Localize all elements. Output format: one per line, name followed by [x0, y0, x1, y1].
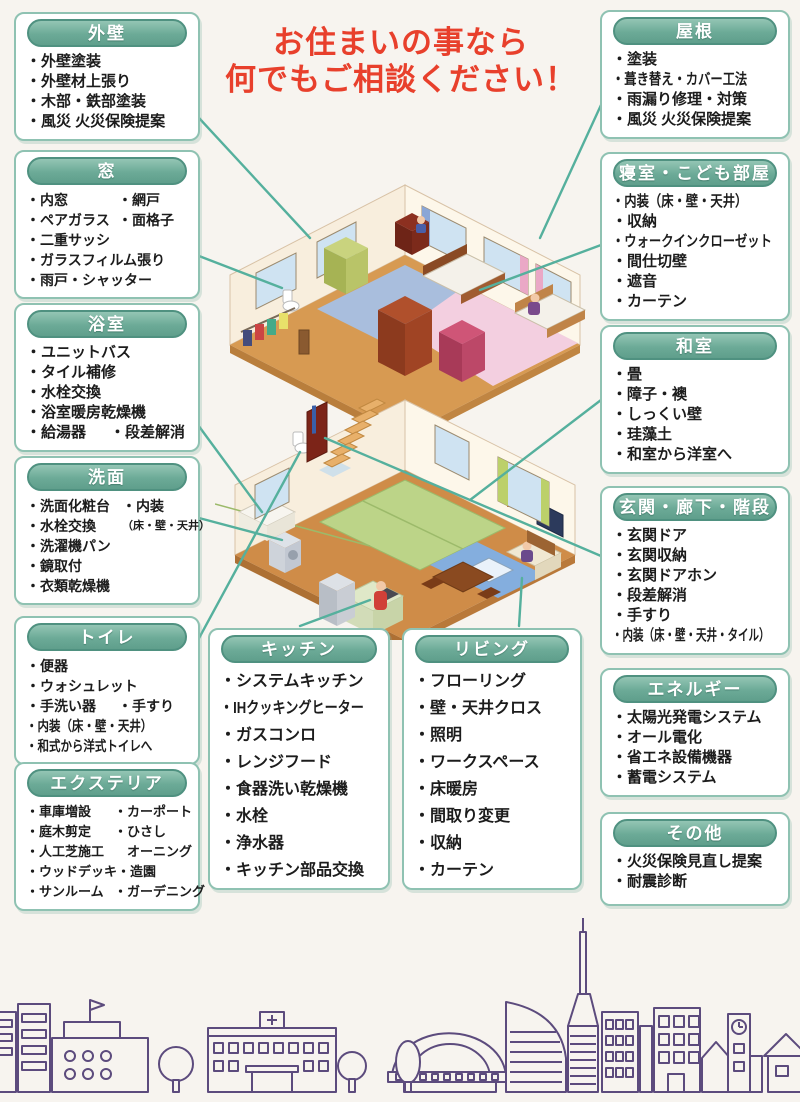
- callout-title: その他: [613, 819, 777, 847]
- item-text: ・給湯器: [26, 423, 110, 443]
- item-text: ・キッチン部品交換: [220, 857, 364, 884]
- item-line: ・ペアガラス・面格子: [26, 210, 188, 230]
- item-text: ・二重サッシ: [26, 230, 110, 250]
- item-text: ・ワークスペース: [414, 749, 540, 776]
- item-text: （床・壁・天井）: [122, 519, 210, 533]
- item-line: ・収納: [414, 830, 570, 857]
- item-line: ・風災 火災保険提案: [612, 110, 778, 130]
- item-line: ・浴室暖房乾燥機: [26, 403, 188, 423]
- item-text: ・雨漏り修理・対策: [612, 90, 747, 110]
- callout-items: ・火災保険見直し提案・耐震診断: [611, 851, 779, 892]
- item-text: ・火災保険見直し提案: [612, 852, 762, 872]
- item-text: ・ガーデニング: [114, 882, 205, 902]
- item-text: ・ユニットバス: [26, 343, 131, 363]
- item-line: ・レンジフード: [220, 749, 378, 776]
- item-text: ・内窓: [26, 190, 118, 210]
- callout-roof: 屋根 ・塗装・葺き替え・カバー工法・雨漏り修理・対策・風災 火災保険提案: [600, 10, 790, 139]
- item-line: ・雨漏り修理・対策: [612, 90, 778, 110]
- item-text: ・葺き替え・カバー工法: [612, 70, 747, 90]
- callout-title: エネルギー: [613, 675, 777, 703]
- item-line: ・葺き替え・カバー工法: [612, 70, 778, 90]
- item-text: ・障子・襖: [612, 385, 687, 405]
- item-text: ・鏡取付: [26, 556, 82, 576]
- item-text: ・網戸: [118, 190, 160, 210]
- callout-title: 屋根: [613, 17, 777, 45]
- item-text: ・内装（床・壁・天井・タイル）: [612, 626, 770, 646]
- item-text: ・太陽光発電システム: [612, 708, 762, 728]
- item-text: ・浄水器: [220, 830, 284, 857]
- item-text: ・車庫増設: [26, 802, 114, 822]
- item-text: ・内装（床・壁・天井）: [612, 192, 747, 212]
- item-line: ・ウォークインクローゼット: [612, 232, 778, 252]
- item-text: ・手洗い器: [26, 696, 118, 716]
- item-text: ・面格子: [118, 210, 174, 230]
- callout-items: ・太陽光発電システム・オール電化・省エネ設備機器・蓄電システム: [611, 707, 779, 788]
- callout-title: 浴室: [27, 310, 187, 338]
- item-text: ・間取り変更: [414, 803, 510, 830]
- callout-items: ・システムキッチン・IHクッキングヒーター・ガスコンロ・レンジフード・食器洗い乾…: [219, 667, 379, 884]
- callout-items: ・内窓・網戸・ペアガラス・面格子・二重サッシ・ガラスフィルム張り・雨戸・シャッタ…: [25, 189, 189, 290]
- item-text: ・玄関ドアホン: [612, 566, 717, 586]
- item-text: ・ペアガラス: [26, 210, 118, 230]
- item-text: ・洗濯機パン: [26, 536, 111, 556]
- item-text: ・オール電化: [612, 728, 702, 748]
- item-line: ・内装（床・壁・天井）: [26, 716, 188, 736]
- callout-entrance: 玄関・廊下・階段 ・玄関ドア・玄関収納・玄関ドアホン・段差解消・手すり・内装（床…: [600, 486, 790, 655]
- item-line: ・車庫増設・カーポート: [26, 802, 188, 822]
- item-line: ・風災 火災保険提案: [26, 112, 188, 132]
- item-line: ・段差解消: [612, 586, 778, 606]
- item-line: ・システムキッチン: [220, 668, 378, 695]
- item-line: ・床暖房: [414, 776, 570, 803]
- item-text: ・ガラスフィルム張り: [26, 250, 165, 270]
- item-text: ・収納: [414, 830, 462, 857]
- item-line: ・雨戸・シャッター: [26, 270, 188, 290]
- item-text: オーニング: [114, 842, 192, 862]
- callout-title: リビング: [415, 635, 569, 663]
- item-line: ・間取り変更: [414, 803, 570, 830]
- page-title-line2: 何でもご相談ください！: [205, 61, 597, 98]
- item-line: ・外壁塗装: [26, 52, 188, 72]
- callout-title: 窓: [27, 157, 187, 185]
- item-line: ・玄関ドア: [612, 526, 778, 546]
- item-line: ・太陽光発電システム: [612, 708, 778, 728]
- item-text: ・内装（床・壁・天井）: [26, 716, 152, 736]
- item-text: ・和室から洋室へ: [612, 445, 732, 465]
- item-line: ・蓄電システム: [612, 768, 778, 788]
- item-line: ・洗濯機パン: [26, 536, 188, 556]
- callout-items: ・外壁塗装・外壁材上張り・木部・鉄部塗装・風災 火災保険提案: [25, 51, 189, 132]
- item-text: ・IHクッキングヒーター: [220, 695, 364, 722]
- item-line: ・給湯器・段差解消: [26, 423, 188, 443]
- callout-title: トイレ: [27, 623, 187, 651]
- item-line: ・障子・襖: [612, 385, 778, 405]
- item-text: ・人工芝施工: [26, 842, 114, 862]
- item-line: ・手すり: [612, 606, 778, 626]
- item-line: ・省エネ設備機器: [612, 748, 778, 768]
- callout-energy: エネルギー ・太陽光発電システム・オール電化・省エネ設備機器・蓄電システム: [600, 668, 790, 797]
- item-line: ・浄水器: [220, 830, 378, 857]
- item-line: ・水栓: [220, 803, 378, 830]
- item-line: ・ワークスペース: [414, 749, 570, 776]
- item-text: ・レンジフード: [220, 749, 332, 776]
- item-line: ・フローリング: [414, 668, 570, 695]
- item-line: ・耐震診断: [612, 872, 778, 892]
- item-text: ・間仕切壁: [612, 252, 687, 272]
- item-line: ・内装（床・壁・天井）: [612, 192, 778, 212]
- item-text: ・便器: [26, 656, 68, 676]
- item-line: ・塗装: [612, 50, 778, 70]
- item-line: ・庭木剪定・ひさし: [26, 822, 188, 842]
- item-line: ・しっくい壁: [612, 405, 778, 425]
- item-text: ・タイル補修: [26, 363, 116, 383]
- callout-exterior: エクステリア ・車庫増設・カーポート・庭木剪定・ひさし・人工芝施工 オーニング・…: [14, 762, 200, 911]
- item-text: ・玄関ドア: [612, 526, 687, 546]
- item-text: ・ウォシュレット: [26, 676, 138, 696]
- item-line: ・火災保険見直し提案: [612, 852, 778, 872]
- item-line: ・水栓交換: [26, 383, 188, 403]
- item-line: ・畳: [612, 365, 778, 385]
- item-text: ・造園: [117, 862, 156, 882]
- item-line: ・ウッドデッキ・造園: [26, 862, 188, 882]
- item-line: ・木部・鉄部塗装: [26, 92, 188, 112]
- item-text: ・雨戸・シャッター: [26, 270, 152, 290]
- callout-bathroom: 浴室 ・ユニットバス・タイル補修・水栓交換・浴室暖房乾燥機・給湯器・段差解消: [14, 303, 200, 452]
- item-line: ・内窓・網戸: [26, 190, 188, 210]
- item-text: ・畳: [612, 365, 642, 385]
- callout-items: ・車庫増設・カーポート・庭木剪定・ひさし・人工芝施工 オーニング・ウッドデッキ・…: [25, 801, 189, 902]
- item-line: ・ユニットバス: [26, 343, 188, 363]
- callout-title: 和室: [613, 332, 777, 360]
- item-text: ・水栓: [220, 803, 268, 830]
- item-line: ・水栓交換（床・壁・天井）: [26, 516, 188, 536]
- item-line: ・サンルーム・ガーデニング: [26, 882, 188, 902]
- callout-items: ・畳・障子・襖・しっくい壁・珪藻土・和室から洋室へ: [611, 364, 779, 465]
- callout-other: その他 ・火災保険見直し提案・耐震診断: [600, 812, 790, 906]
- house-illustration: [215, 180, 600, 640]
- item-text: ・内装: [122, 496, 164, 516]
- callout-title: エクステリア: [27, 769, 187, 797]
- callout-items: ・洗面化粧台・内装・水栓交換（床・壁・天井）・洗濯機パン・鏡取付・衣類乾燥機: [25, 495, 189, 596]
- item-text: ・ひさし: [114, 822, 166, 842]
- item-line: ・玄関収納: [612, 546, 778, 566]
- callout-washroom: 洗面 ・洗面化粧台・内装・水栓交換（床・壁・天井）・洗濯機パン・鏡取付・衣類乾燥…: [14, 456, 200, 605]
- item-text: ・水栓交換: [26, 383, 101, 403]
- item-line: ・便器: [26, 656, 188, 676]
- item-line: ・照明: [414, 722, 570, 749]
- callout-title: キッチン: [221, 635, 377, 663]
- callout-items: ・フローリング・壁・天井クロス・照明・ワークスペース・床暖房・間取り変更・収納・…: [413, 667, 571, 884]
- item-line: ・収納: [612, 212, 778, 232]
- page-title: お住まいの事なら 何でもご相談ください！: [205, 24, 597, 98]
- item-text: ・段差解消: [110, 423, 185, 443]
- item-text: ・サンルーム: [26, 882, 114, 902]
- item-text: ・床暖房: [414, 776, 478, 803]
- item-line: ・キッチン部品交換: [220, 857, 378, 884]
- item-text: ・洗面化粧台: [26, 496, 122, 516]
- item-line: ・ガスコンロ: [220, 722, 378, 749]
- item-text: ・収納: [612, 212, 657, 232]
- item-text: ・フローリング: [414, 668, 526, 695]
- item-text: ・浴室暖房乾燥機: [26, 403, 146, 423]
- item-text: ・カーテン: [414, 857, 494, 884]
- item-text: ・塗装: [612, 50, 657, 70]
- item-text: ・和式から洋式トイレへ: [26, 736, 152, 756]
- callout-items: ・ユニットバス・タイル補修・水栓交換・浴室暖房乾燥機・給湯器・段差解消: [25, 342, 189, 443]
- callout-title: 洗面: [27, 463, 187, 491]
- callout-japanese-room: 和室 ・畳・障子・襖・しっくい壁・珪藻土・和室から洋室へ: [600, 325, 790, 474]
- item-text: ・珪藻土: [612, 425, 672, 445]
- page-title-line1: お住まいの事なら: [205, 24, 597, 61]
- item-text: ・蓄電システム: [612, 768, 717, 788]
- item-text: ・ウォークインクローゼット: [612, 232, 772, 252]
- item-text: ・カーポート: [114, 802, 192, 822]
- callout-items: ・便器・ウォシュレット・手洗い器・手すり・内装（床・壁・天井）・和式から洋式トイ…: [25, 655, 189, 756]
- item-line: ・ウォシュレット: [26, 676, 188, 696]
- item-text: ・カーテン: [612, 292, 687, 312]
- callout-living: リビング ・フローリング・壁・天井クロス・照明・ワークスペース・床暖房・間取り変…: [402, 628, 582, 890]
- item-text: ・食器洗い乾燥機: [220, 776, 348, 803]
- first-floor: [215, 399, 575, 640]
- item-line: ・外壁材上張り: [26, 72, 188, 92]
- city-skyline: [0, 916, 800, 1102]
- item-text: ・遮音: [612, 272, 657, 292]
- item-line: ・壁・天井クロス: [414, 695, 570, 722]
- item-line: ・二重サッシ: [26, 230, 188, 250]
- item-text: ・しっくい壁: [612, 405, 702, 425]
- item-line: ・カーテン: [612, 292, 778, 312]
- callout-items: ・玄関ドア・玄関収納・玄関ドアホン・段差解消・手すり・内装（床・壁・天井・タイル…: [611, 525, 779, 646]
- item-line: ・和室から洋室へ: [612, 445, 778, 465]
- item-line: ・IHクッキングヒーター: [220, 695, 378, 722]
- item-text: ・水栓交換: [26, 516, 122, 536]
- callout-toilet: トイレ ・便器・ウォシュレット・手洗い器・手すり・内装（床・壁・天井）・和式から…: [14, 616, 200, 765]
- callout-bedroom: 寝室・こども部屋 ・内装（床・壁・天井）・収納・ウォークインクローゼット・間仕切…: [600, 152, 790, 321]
- item-line: ・珪藻土: [612, 425, 778, 445]
- item-text: ・玄関収納: [612, 546, 687, 566]
- item-text: ・庭木剪定: [26, 822, 114, 842]
- item-text: ・木部・鉄部塗装: [26, 92, 146, 112]
- item-line: ・オール電化: [612, 728, 778, 748]
- item-text: ・耐震診断: [612, 872, 687, 892]
- callout-items: ・内装（床・壁・天井）・収納・ウォークインクローゼット・間仕切壁・遮音・カーテン: [611, 191, 779, 312]
- callout-title: 寝室・こども部屋: [613, 159, 777, 187]
- item-line: ・洗面化粧台・内装: [26, 496, 188, 516]
- item-text: ・ガスコンロ: [220, 722, 316, 749]
- item-line: ・和式から洋式トイレへ: [26, 736, 188, 756]
- item-line: ・玄関ドアホン: [612, 566, 778, 586]
- callout-title: 外壁: [27, 19, 187, 47]
- item-text: ・段差解消: [612, 586, 687, 606]
- item-text: ・システムキッチン: [220, 668, 364, 695]
- item-line: ・食器洗い乾燥機: [220, 776, 378, 803]
- callout-kitchen: キッチン ・システムキッチン・IHクッキングヒーター・ガスコンロ・レンジフード・…: [208, 628, 390, 890]
- item-text: ・衣類乾燥機: [26, 576, 110, 596]
- item-line: ・タイル補修: [26, 363, 188, 383]
- item-line: ・人工芝施工 オーニング: [26, 842, 188, 862]
- item-text: ・風災 火災保険提案: [26, 112, 165, 132]
- item-line: ・手洗い器・手すり: [26, 696, 188, 716]
- item-line: ・衣類乾燥機: [26, 576, 188, 596]
- item-text: ・省エネ設備機器: [612, 748, 732, 768]
- callout-items: ・塗装・葺き替え・カバー工法・雨漏り修理・対策・風災 火災保険提案: [611, 49, 779, 130]
- item-text: ・壁・天井クロス: [414, 695, 542, 722]
- item-text: ・手すり: [612, 606, 672, 626]
- item-text: ・手すり: [118, 696, 174, 716]
- callout-title: 玄関・廊下・階段: [613, 493, 777, 521]
- item-text: ・風災 火災保険提案: [612, 110, 751, 130]
- item-text: ・外壁塗装: [26, 52, 101, 72]
- item-line: ・ガラスフィルム張り: [26, 250, 188, 270]
- item-text: ・外壁材上張り: [26, 72, 131, 92]
- item-text: ・照明: [414, 722, 462, 749]
- item-line: ・内装（床・壁・天井・タイル）: [612, 626, 778, 646]
- callout-exterior-wall: 外壁 ・外壁塗装・外壁材上張り・木部・鉄部塗装・風災 火災保険提案: [14, 12, 200, 141]
- callout-window: 窓 ・内窓・網戸・ペアガラス・面格子・二重サッシ・ガラスフィルム張り・雨戸・シャ…: [14, 150, 200, 299]
- item-line: ・遮音: [612, 272, 778, 292]
- item-line: ・間仕切壁: [612, 252, 778, 272]
- item-line: ・鏡取付: [26, 556, 188, 576]
- item-text: ・ウッドデッキ: [26, 862, 117, 882]
- item-line: ・カーテン: [414, 857, 570, 884]
